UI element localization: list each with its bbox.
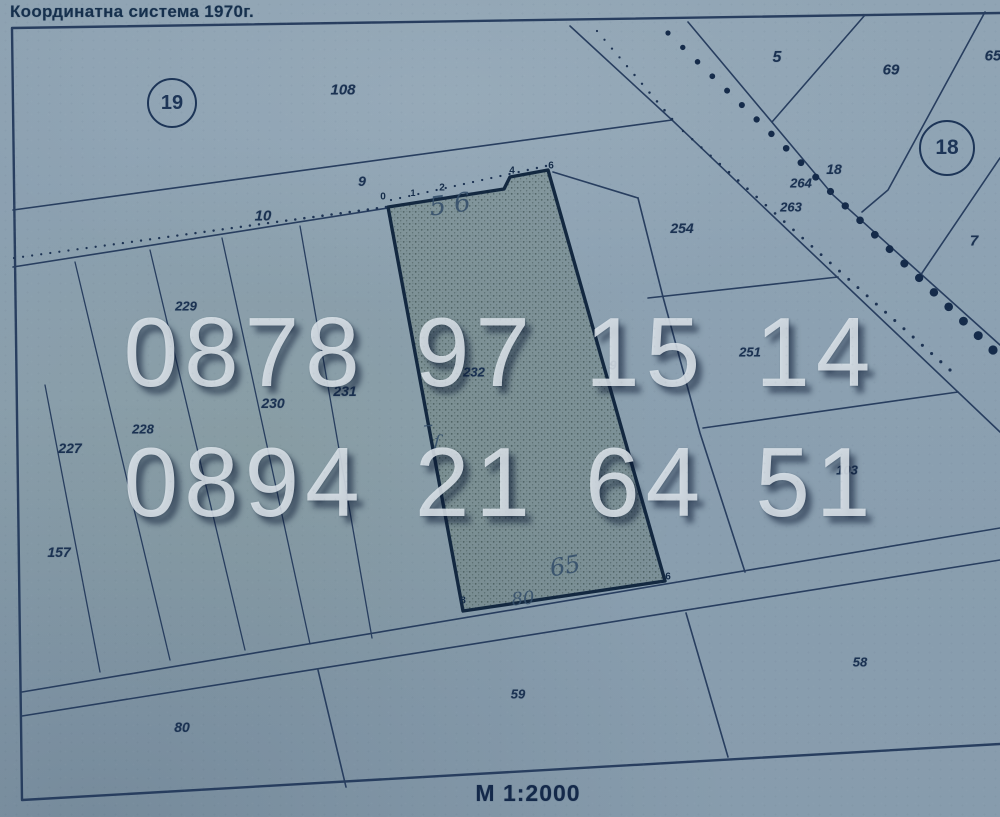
vertex-8: 8 — [460, 596, 466, 607]
cadastral-map-photo: Координатна система 1970г. М 1:2000 1085… — [0, 0, 1000, 817]
road-strip-bottom-line — [13, 208, 388, 267]
handwriting-80: 80 — [511, 587, 536, 610]
vertex-6-top: 6 — [548, 161, 554, 172]
vertex-6-bottom: 6 — [665, 572, 671, 583]
parcel-label-227: 227 — [58, 440, 81, 456]
parcel-label-80: 80 — [174, 719, 190, 735]
parcel-label-157: 157 — [47, 544, 70, 560]
parcel-label-263: 263 — [780, 200, 802, 215]
parcel-7-top-boundary — [920, 158, 1000, 276]
parcel-label-108: 108 — [330, 82, 355, 99]
handwriting-65: 65 — [548, 550, 583, 583]
strip-divider-157-227 — [45, 385, 100, 672]
vertex-1: 1 — [410, 188, 415, 198]
road-label-10: 10 — [255, 208, 272, 225]
parcel-label-59: 59 — [511, 687, 525, 702]
handwriting-56: 5 6 — [427, 187, 472, 222]
watermark-phone-2: 0894 21 64 51 — [124, 426, 877, 539]
parcel-69-right-boundary — [862, 12, 985, 212]
parcel-label-5: 5 — [773, 49, 782, 67]
parcel-5-right-boundary — [772, 15, 865, 122]
vertex-4: 4 — [509, 166, 515, 177]
parcel-label-65: 65 — [985, 48, 1000, 65]
parcel-254-bottom-boundary — [648, 277, 838, 298]
parcel-label-58: 58 — [853, 655, 867, 670]
map-title: Координатна система 1970г. — [10, 2, 254, 22]
vertex-0: 0 — [380, 192, 386, 203]
parcel-label-264: 264 — [790, 176, 812, 191]
strip-9-top-boundary — [553, 172, 638, 198]
road-strip-top-line — [13, 120, 672, 210]
parcel-label-7: 7 — [970, 233, 978, 250]
sheet-number-18: 18 — [919, 120, 975, 176]
parcel-label-254: 254 — [670, 220, 693, 236]
sheet-number-19: 19 — [147, 78, 197, 128]
parcel-label-18: 18 — [826, 161, 842, 177]
scale-label: М 1:2000 — [475, 780, 580, 807]
road-label-9: 9 — [358, 173, 366, 189]
watermark-phone-1: 0878 97 15 14 — [124, 296, 877, 409]
parcel-59-58-divider — [686, 613, 728, 757]
parcel-label-69: 69 — [883, 62, 900, 79]
parcel-80-59-divider — [318, 670, 346, 787]
